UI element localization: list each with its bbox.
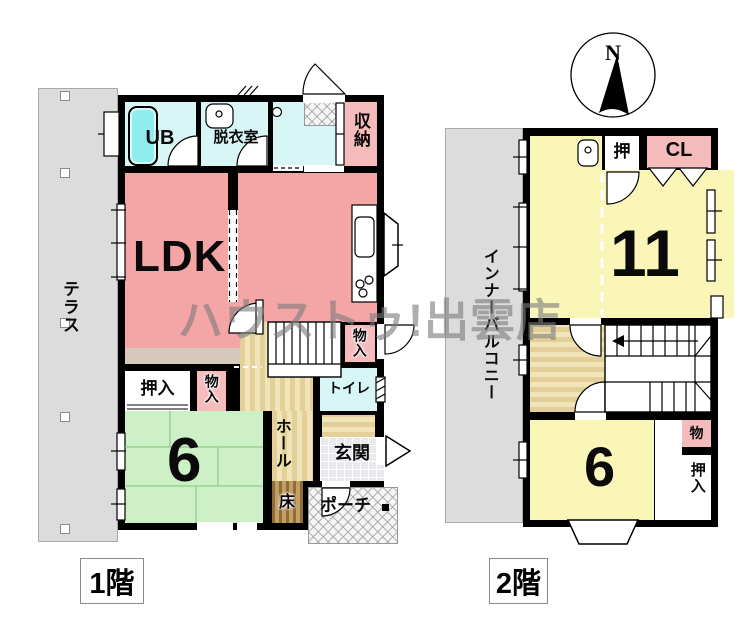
porch-dot (382, 504, 389, 511)
toilet-label: トイレ (322, 381, 376, 396)
room6-2f-label: 6 (584, 438, 615, 497)
closet-front-strip (654, 420, 682, 520)
compass-north-label: N (605, 40, 621, 65)
floor1-name-box: 1階 (80, 558, 144, 604)
dressing-label: 脱衣室 (202, 130, 270, 146)
watermark-text: ハウストゥ!出雲店 (178, 284, 562, 349)
terrace-post (60, 524, 70, 534)
cl-2f-label: CL (655, 140, 703, 161)
ldk-label: LDK (133, 234, 226, 280)
room11-label: 11 (610, 219, 680, 288)
closet-2f-label: 押入 (689, 462, 705, 494)
closet-1f-label: 押入 (125, 380, 190, 398)
entrance-label: 玄関 (324, 444, 380, 463)
entrance-step (322, 415, 375, 437)
alcove-label: 床 (279, 495, 295, 512)
terrace-post (60, 91, 70, 101)
floor1-name-label: 1階 (89, 560, 134, 602)
floor-plan-canvas: テラス インナーバルコニー (0, 0, 756, 628)
compass: N (566, 26, 660, 120)
tatami6-1f-label: 6 (167, 428, 201, 493)
floor2-name-box: 2階 (489, 558, 548, 604)
floor2-name-label: 2階 (496, 560, 541, 602)
terrace-label: テラス (60, 280, 78, 334)
cupboard-1f-label: 物入 (204, 374, 219, 404)
backdoor-mat (304, 100, 340, 126)
ub-label: UB (138, 128, 182, 149)
terrace-post (60, 412, 70, 422)
engawa-strip (125, 348, 240, 364)
bay-window-dk (384, 213, 403, 276)
hall-label: ホール (272, 418, 289, 469)
terrace-post (60, 168, 70, 178)
hall-mid (240, 377, 313, 411)
storage-2f-label: 物 (682, 426, 711, 441)
ldk-divider-wall (228, 173, 238, 210)
oshi-2f-label: 押 (605, 143, 639, 161)
storage-top-label: 収納 (351, 112, 369, 148)
porch-label: ポーチ (320, 497, 371, 515)
